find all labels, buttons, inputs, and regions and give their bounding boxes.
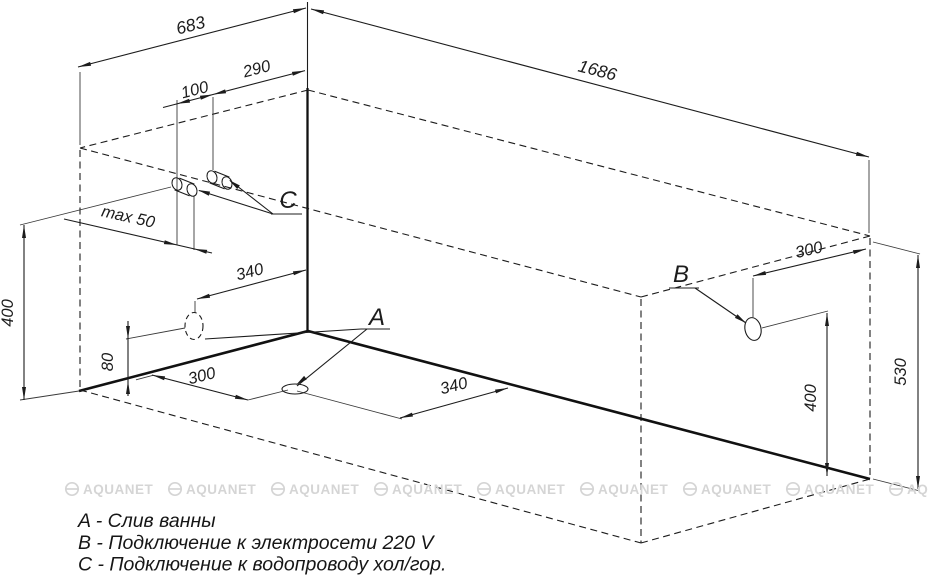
dim-290-label: 290 — [240, 57, 273, 82]
dim-300-b-label: 300 — [793, 238, 825, 262]
watermark: AQUANET — [169, 482, 257, 497]
dim-80-label: 80 — [99, 352, 117, 371]
wall-drain-hole — [185, 313, 203, 340]
dim-400-left-label: 400 — [0, 298, 17, 326]
label-water-connection: C — [198, 180, 302, 214]
water-pipes — [170, 169, 233, 197]
svg-text:AQUANET: AQUANET — [186, 482, 257, 497]
legend-item-drain: A - Слив ванны — [77, 510, 216, 532]
dim-1686-label: 1686 — [576, 56, 619, 85]
watermark: AQUANET — [478, 482, 566, 497]
technical-drawing-canvas: 683 1686 100 290 max 50 340 400 — [0, 0, 928, 576]
power-connection — [743, 316, 763, 342]
dimension-power-offset: 300 — [753, 238, 866, 276]
watermark: AQUANET — [375, 482, 463, 497]
point-c-label: C — [279, 187, 297, 214]
dimension-top-width: 683 — [78, 8, 306, 67]
floor-drain — [282, 384, 308, 394]
dimension-pipe-protrusion: max 50 — [64, 202, 212, 253]
svg-text:AQUANET: AQUANET — [495, 482, 566, 497]
bathtub-outline — [80, 90, 870, 543]
svg-text:AQUANET: AQUANET — [83, 482, 154, 497]
bathtub-installation-diagram: 683 1686 100 290 max 50 340 400 — [0, 0, 928, 576]
legend: A - Слив ванны B - Подключение к электро… — [77, 510, 446, 576]
watermark: AQUANET — [890, 482, 928, 497]
dim-max50-label: max 50 — [100, 202, 158, 231]
svg-text:AQUANET: AQUANET — [392, 482, 463, 497]
watermark: AQUANET — [787, 482, 875, 497]
dimension-power-height: 400 — [802, 313, 829, 476]
label-power-connection: B — [669, 261, 746, 323]
watermark: AQUANET — [272, 482, 360, 497]
svg-text:AQUANET: AQUANET — [907, 482, 928, 497]
dimension-wall-drain-offset: 340 — [197, 260, 306, 299]
room-lines — [79, 2, 870, 479]
dimension-pipes-position: 100 290 — [163, 57, 305, 108]
legend-item-power: B - Подключение к электросети 220 V — [78, 532, 435, 554]
svg-text:AQUANET: AQUANET — [289, 482, 360, 497]
point-b-label: B — [673, 261, 689, 288]
dim-100-label: 100 — [179, 78, 211, 103]
svg-text:AQUANET: AQUANET — [598, 482, 669, 497]
svg-text:AQUANET: AQUANET — [701, 482, 772, 497]
dim-340-floor-label: 340 — [438, 374, 470, 398]
watermark: AQUANET — [66, 482, 154, 497]
dim-300-floor-label: 300 — [186, 364, 218, 388]
watermark-row: AQUANET AQUANET AQUANET AQUANET AQUANET … — [66, 482, 928, 497]
watermark: AQUANET — [581, 482, 669, 497]
watermark: AQUANET — [684, 482, 772, 497]
dimension-top-length: 1686 — [311, 9, 869, 157]
svg-text:AQUANET: AQUANET — [804, 482, 875, 497]
dimension-pipes-height: 400 — [0, 225, 26, 400]
point-a-label: A — [367, 304, 385, 331]
legend-item-water: C - Подключение к водопроводу хол/гор. — [78, 554, 446, 576]
dim-340-wall-label: 340 — [234, 260, 266, 285]
dimension-overall-height: 530 — [892, 255, 920, 489]
dim-530-label: 530 — [892, 357, 910, 385]
dim-400-right-label: 400 — [802, 383, 820, 411]
